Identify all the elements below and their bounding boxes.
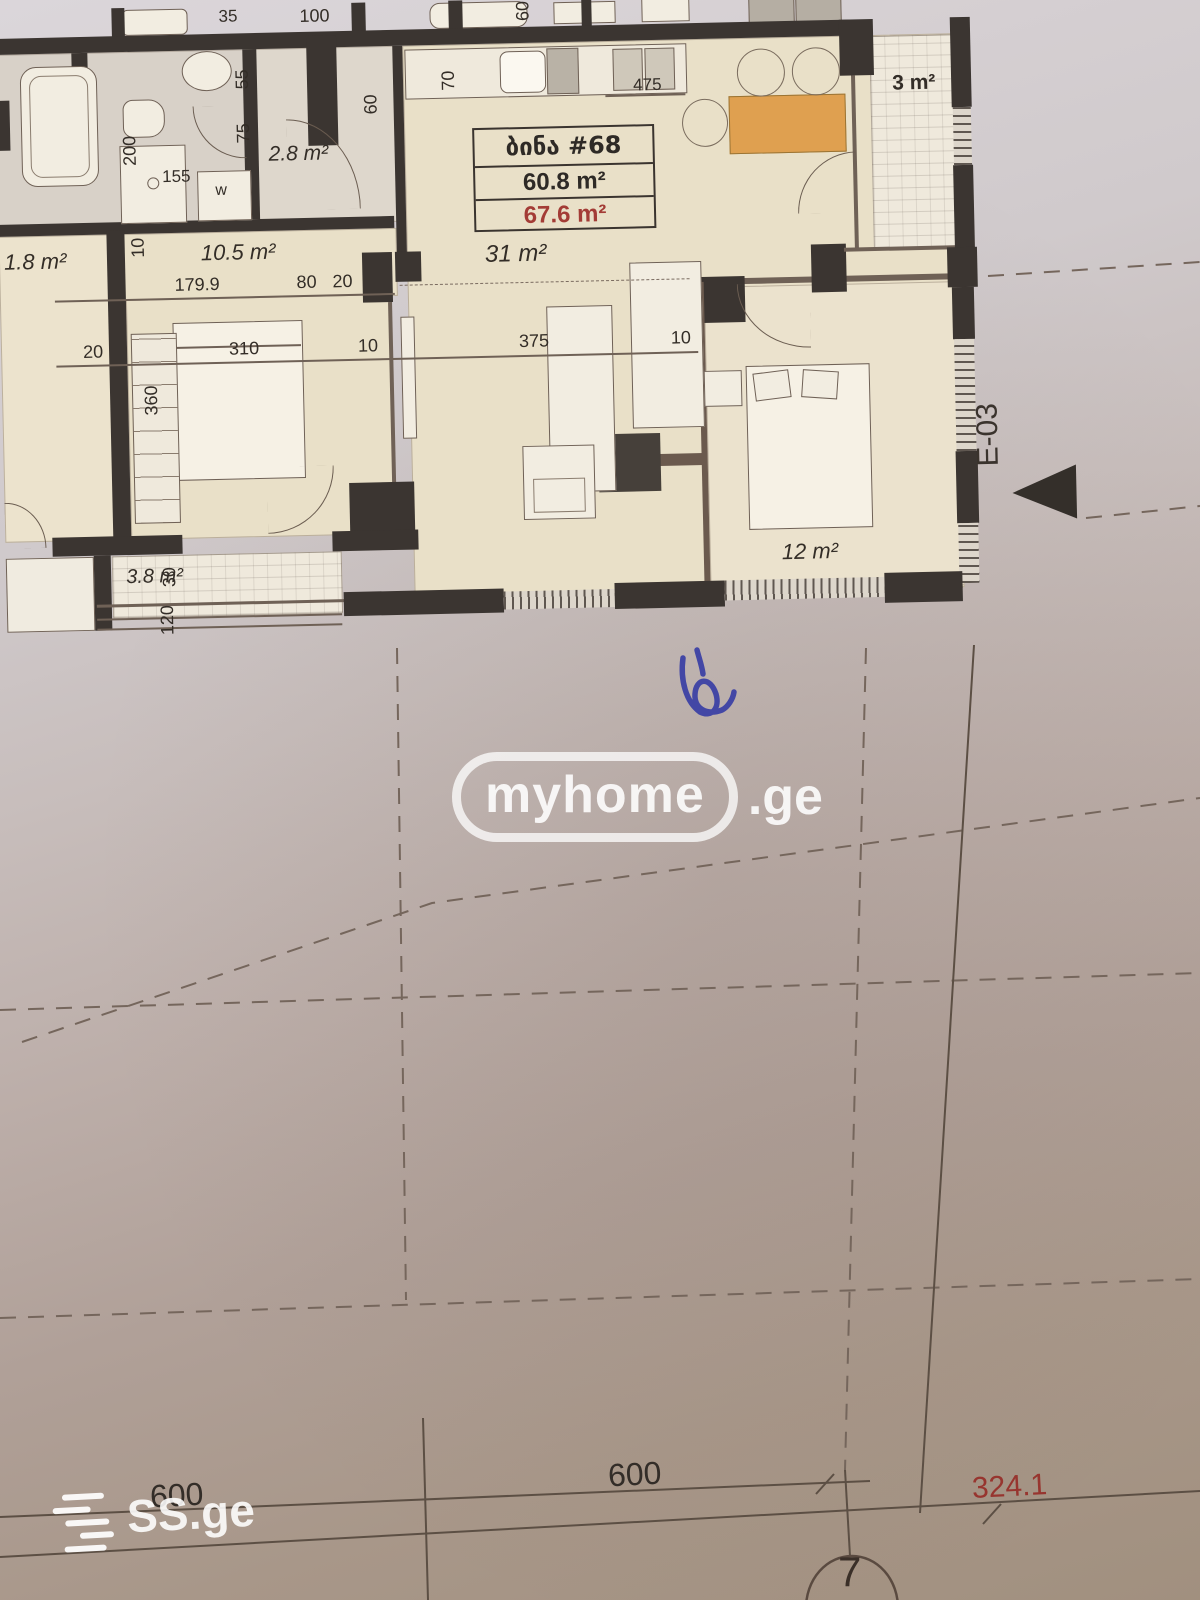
dimension-tick: [983, 1504, 1001, 1524]
myhome-brand-text: myhome: [485, 766, 705, 824]
ssge-icon-bar: [80, 1531, 114, 1539]
ssge-icon-bar: [62, 1493, 104, 1501]
grid-line-dashed-h2: [1086, 506, 1200, 518]
pen-mark: [682, 650, 734, 714]
watermark-ssge: SS.ge: [52, 1483, 256, 1547]
ssge-text: SS.ge: [126, 1484, 256, 1543]
grid-line-dashed-h1: [988, 262, 1200, 276]
grid-line-dashed-v1: [397, 648, 406, 1300]
ssge-icon: [52, 1492, 117, 1553]
myhome-pill: myhome: [452, 752, 738, 842]
grid-line-vc: [423, 1418, 428, 1600]
grid-line-dashed-h4: [0, 1279, 1200, 1318]
ssge-icon-bar: [53, 1506, 91, 1514]
bottom-dim-600-mid: 600: [607, 1455, 662, 1495]
grid-line-dashed-v2: [845, 648, 866, 1470]
grid-bubble-number: 7: [838, 1548, 861, 1596]
grid-line-dashed-h3: [0, 973, 1200, 1010]
photo-background: 2.8 m² 1.8 m² 10.5 m² 31 m² 3 m² 12 m² 3…: [0, 0, 1200, 1600]
watermark-myhome: myhome .ge: [452, 752, 823, 842]
grid-line-v3: [920, 645, 974, 1513]
bottom-dim-324: 324.1: [971, 1468, 1048, 1506]
ssge-icon-bar: [65, 1518, 109, 1526]
myhome-tld-text: .ge: [748, 768, 823, 826]
